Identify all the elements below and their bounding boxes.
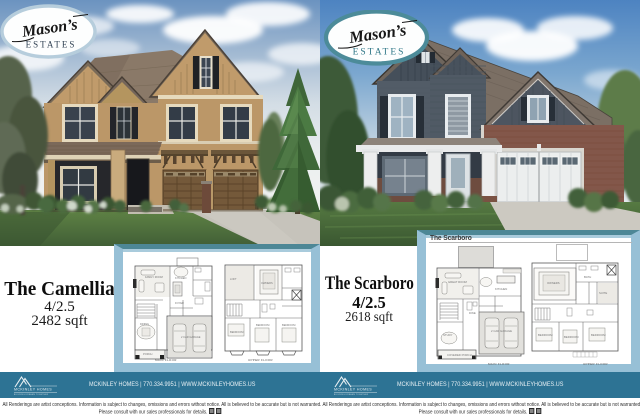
svg-text:BEDROOM: BEDROOM bbox=[282, 323, 295, 327]
svg-text:FOYER: FOYER bbox=[175, 301, 184, 305]
svg-text:OWNERS: OWNERS bbox=[261, 281, 273, 285]
svg-text:MCKINLEY HOMES: MCKINLEY HOMES bbox=[334, 388, 372, 392]
svg-text:GREAT ROOM: GREAT ROOM bbox=[448, 280, 468, 284]
svg-text:BATH: BATH bbox=[584, 275, 591, 279]
svg-text:ESTATES: ESTATES bbox=[26, 40, 77, 50]
svg-text:KITCHEN: KITCHEN bbox=[175, 276, 187, 280]
svg-text:2 CAR GARAGE: 2 CAR GARAGE bbox=[181, 335, 201, 339]
svg-text:OWNERS: OWNERS bbox=[547, 281, 560, 285]
svg-text:LOFT: LOFT bbox=[230, 277, 237, 281]
svg-text:ESTATES: ESTATES bbox=[353, 48, 406, 58]
svg-text:2 CAR GARAGE: 2 CAR GARAGE bbox=[491, 329, 512, 333]
svg-text:BEDROOM: BEDROOM bbox=[538, 333, 553, 337]
svg-text:KITCHEN: KITCHEN bbox=[495, 287, 507, 291]
svg-text:BUILDING DREAMS TOGETHER: BUILDING DREAMS TOGETHER bbox=[334, 393, 369, 395]
svg-text:DINE: DINE bbox=[469, 311, 476, 315]
svg-text:BEDROOM: BEDROOM bbox=[591, 333, 606, 337]
svg-text:PORCH: PORCH bbox=[143, 352, 152, 356]
svg-text:MCKINLEY HOMES: MCKINLEY HOMES bbox=[14, 388, 52, 392]
svg-text:BUILDING DREAMS TOGETHER: BUILDING DREAMS TOGETHER bbox=[14, 393, 49, 395]
svg-text:BEDROOM: BEDROOM bbox=[230, 330, 243, 334]
svg-text:BEDROOM: BEDROOM bbox=[256, 323, 269, 327]
svg-text:STUDY: STUDY bbox=[443, 333, 453, 337]
svg-text:DINING: DINING bbox=[140, 322, 149, 326]
svg-text:BEDROOM: BEDROOM bbox=[564, 335, 579, 339]
svg-text:FAMILY ROOM: FAMILY ROOM bbox=[145, 275, 163, 279]
svg-text:SUITE: SUITE bbox=[599, 291, 607, 295]
svg-text:COVERED PORCH: COVERED PORCH bbox=[447, 353, 472, 357]
